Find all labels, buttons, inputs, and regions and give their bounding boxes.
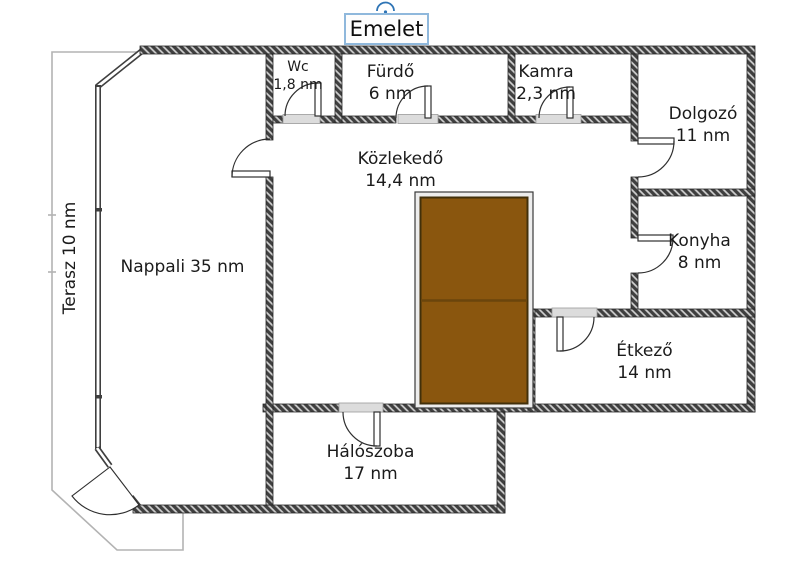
room-name: Konyha [652, 230, 747, 252]
room-area: 35 nm [190, 256, 244, 278]
stairwell [415, 192, 533, 408]
room-area: 6 nm [348, 83, 433, 105]
room-area: 2,3 nm [506, 83, 586, 105]
room-area: 14 nm [592, 362, 697, 384]
room-label-nappali: Nappali 35 nm [100, 256, 265, 278]
title-textbox[interactable]: Emelet [344, 13, 429, 45]
room-label-dolgozo: Dolgozó 11 nm [653, 103, 753, 148]
room-label-haloszoba: Hálószoba 17 nm [313, 441, 428, 486]
page-title: Emelet [350, 17, 424, 41]
room-area: 14,4 nm [343, 170, 458, 192]
floor-plan-page: Emelet Wc 1,8 nm Fürdő 6 nm Kamra 2,3 nm… [0, 0, 800, 581]
room-area: 17 nm [313, 463, 428, 485]
room-area: 11 nm [653, 125, 753, 147]
room-label-kamra: Kamra 2,3 nm [506, 61, 586, 106]
room-name: Közlekedő [343, 148, 458, 170]
room-label-kozlekedo: Közlekedő 14,4 nm [343, 148, 458, 193]
room-name: Hálószoba [313, 441, 428, 463]
room-label-etkezo: Étkező 14 nm [592, 340, 697, 385]
room-name: Étkező [592, 340, 697, 362]
room-label-wc: Wc 1,8 nm [268, 58, 328, 95]
room-area: 1,8 nm [268, 76, 328, 94]
room-name: Fürdő [348, 61, 433, 83]
rotate-handle-icon[interactable] [377, 3, 394, 14]
room-area: 8 nm [652, 252, 747, 274]
room-area: 10 nm [60, 202, 80, 256]
room-name: Terasz [60, 261, 80, 314]
room-name: Kamra [506, 61, 586, 83]
window-walls [95, 51, 143, 512]
room-name: Wc [268, 58, 328, 76]
room-label-furdo: Fürdő 6 nm [348, 61, 433, 106]
room-name: Dolgozó [653, 103, 753, 125]
room-label-terasz: Terasz 10 nm [60, 202, 80, 315]
room-name: Nappali [121, 256, 186, 278]
room-label-konyha: Konyha 8 nm [652, 230, 747, 275]
